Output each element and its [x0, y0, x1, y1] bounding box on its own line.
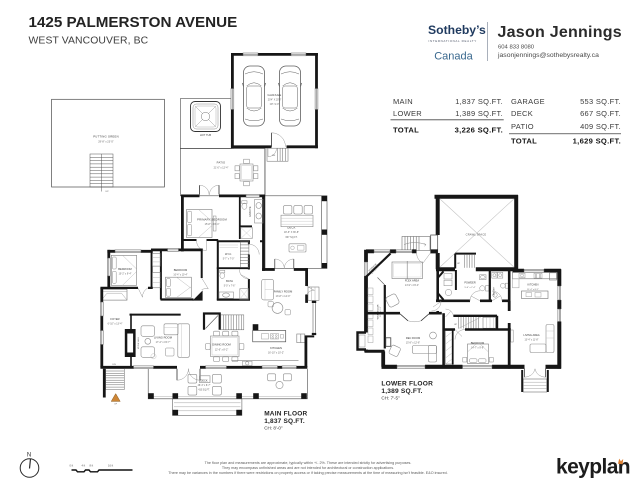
svg-text:FLEX AREA: FLEX AREA [405, 278, 419, 282]
svg-text:There may be variances in the: There may be variances in the numbers if… [168, 471, 447, 475]
svg-text:415 SQ.FT.: 415 SQ.FT. [198, 390, 210, 392]
svg-text:PRIMARY BEDROOM: PRIMARY BEDROOM [197, 217, 227, 221]
svg-text:8 ft: 8 ft [90, 464, 94, 468]
svg-text:16 ft: 16 ft [108, 464, 113, 468]
svg-text:PATIO: PATIO [217, 161, 226, 165]
svg-text:667 SQ.FT.: 667 SQ.FT. [580, 109, 621, 118]
svg-text:BEDROOM: BEDROOM [118, 267, 131, 271]
svg-text:DN: DN [272, 155, 276, 157]
svg-text:5'-7" x 7'-0": 5'-7" x 7'-0" [223, 258, 235, 260]
svg-text:GARAGE: GARAGE [511, 97, 545, 106]
svg-text:29'-8" x 23'-5": 29'-8" x 23'-5" [98, 140, 113, 143]
svg-text:14'-9" x 15'-4": 14'-9" x 15'-4" [405, 285, 419, 287]
svg-text:Jason Jennings: Jason Jennings [498, 24, 622, 41]
svg-text:10'-1" x 5'-9": 10'-1" x 5'-9" [380, 306, 382, 317]
svg-text:MAIN: MAIN [393, 97, 413, 106]
svg-text:DECK: DECK [200, 379, 207, 383]
svg-text:LIVING ROOM: LIVING ROOM [154, 336, 173, 340]
svg-text:20'4" X 20'8": 20'4" X 20'8" [268, 99, 282, 102]
svg-text:UP: UP [106, 191, 110, 193]
svg-text:BATH: BATH [226, 279, 233, 283]
svg-text:MAIN FLOOR: MAIN FLOOR [264, 411, 307, 418]
svg-text:5'-0" x 7'-6": 5'-0" x 7'-6" [224, 285, 236, 287]
svg-text:TOTAL: TOTAL [393, 125, 419, 134]
svg-text:CH: 8'-0": CH: 8'-0" [264, 425, 283, 430]
svg-text:553 SQ.FT.: 553 SQ.FT. [580, 97, 621, 106]
svg-text:WEST VANCOUVER, BC: WEST VANCOUVER, BC [29, 36, 149, 47]
svg-text:jasonjennings@sothebysrealty.c: jasonjennings@sothebysrealty.ca [497, 52, 599, 59]
svg-text:14'-7" x 9'-9": 14'-7" x 9'-9" [471, 347, 484, 349]
svg-text:PUTTING GREEN: PUTTING GREEN [93, 135, 119, 139]
svg-text:10'-2" x 9'-4": 10'-2" x 9'-4" [119, 274, 132, 276]
svg-text:17'-4" x 15'-7": 17'-4" x 15'-7" [156, 341, 171, 344]
svg-text:409 SQ.FT.: 409 SQ.FT. [580, 122, 621, 131]
svg-text:They may encompass unfinished: They may encompass unfinished areas and … [222, 466, 394, 470]
svg-text:KITCHEN: KITCHEN [528, 284, 539, 287]
svg-text:W.I.C.: W.I.C. [225, 252, 232, 256]
svg-text:FAMILY ROOM: FAMILY ROOM [274, 290, 293, 294]
svg-text:DINING ROOM: DINING ROOM [212, 343, 231, 347]
svg-text:1,389 SQ.FT.: 1,389 SQ.FT. [455, 109, 503, 118]
svg-text:N: N [27, 453, 31, 459]
svg-text:DECK: DECK [511, 109, 533, 118]
svg-text:4 ft: 4 ft [82, 464, 86, 468]
svg-text:REC ROOM: REC ROOM [406, 336, 420, 340]
svg-text:15'-8" x 12'-6": 15'-8" x 12'-6" [406, 342, 420, 344]
svg-text:UP: UP [457, 263, 461, 265]
svg-text:BEDROOM: BEDROOM [471, 341, 484, 345]
svg-text:0 ft: 0 ft [70, 464, 74, 468]
svg-text:5'-0" x 7'-4": 5'-0" x 7'-4" [464, 287, 475, 289]
svg-text:keyplan: keyplan [556, 456, 630, 479]
svg-text:12'-6" x 8'-2": 12'-6" x 8'-2" [215, 348, 229, 351]
svg-text:LOWER: LOWER [393, 109, 422, 118]
svg-text:GARAGE: GARAGE [267, 93, 281, 97]
svg-text:CH: 7'-5": CH: 7'-5" [381, 396, 400, 401]
svg-text:16'-10" x 10'-2": 16'-10" x 10'-2" [268, 352, 284, 355]
svg-text:1,837 SQ.FT.: 1,837 SQ.FT. [455, 97, 503, 106]
svg-text:The floor plan and measurement: The floor plan and measurements are appr… [205, 461, 412, 465]
svg-text:CRAWL SPACE: CRAWL SPACE [466, 232, 487, 236]
svg-text:POWDER: POWDER [464, 281, 475, 284]
svg-text:DECK: DECK [287, 226, 295, 230]
svg-text:INTERNATIONAL REALTY: INTERNATIONAL REALTY [429, 39, 477, 43]
svg-text:LIVING AREA: LIVING AREA [523, 333, 539, 337]
svg-text:1,837 SQ.FT.: 1,837 SQ.FT. [264, 418, 305, 425]
svg-text:6'-10" x 13'-4": 6'-10" x 13'-4" [108, 323, 123, 326]
svg-text:UP: UP [454, 324, 458, 326]
svg-text:15'-8" x 15'-4": 15'-8" x 15'-4" [205, 223, 220, 226]
svg-text:604 833 8080: 604 833 8080 [498, 44, 535, 50]
svg-text:BEDROOM: BEDROOM [174, 268, 187, 272]
svg-text:18'-6" X 36'-8": 18'-6" X 36'-8" [284, 231, 299, 234]
svg-text:1,629 SQ.FT.: 1,629 SQ.FT. [573, 137, 621, 146]
svg-text:CH: 9'-0": CH: 9'-0" [270, 103, 280, 106]
svg-text:21'-0" x 12'-4": 21'-0" x 12'-4" [214, 166, 229, 169]
svg-text:1425 PALMERSTON AVENUE: 1425 PALMERSTON AVENUE [29, 14, 238, 31]
svg-text:Canada: Canada [434, 51, 473, 63]
svg-text:ENSUITE: ENSUITE [250, 206, 252, 216]
svg-text:667 SQ.FT.: 667 SQ.FT. [285, 236, 297, 239]
svg-text:10'-4" x 10'-4": 10'-4" x 10'-4" [173, 275, 187, 277]
svg-text:MEDIA WALL: MEDIA WALL [137, 336, 140, 349]
svg-text:KITCHEN: KITCHEN [270, 346, 282, 350]
svg-text:FOYER: FOYER [110, 317, 119, 321]
svg-text:HOT TUB: HOT TUB [200, 133, 212, 137]
svg-text:13'-4" x 11'-8": 13'-4" x 11'-8" [525, 339, 539, 341]
svg-text:48'-4" x 8'-7": 48'-4" x 8'-7" [198, 385, 211, 387]
svg-text:11'-4" x 8'-1": 11'-4" x 8'-1" [527, 289, 539, 291]
svg-text:DN: DN [113, 364, 117, 366]
svg-text:1,389 SQ.FT.: 1,389 SQ.FT. [381, 388, 422, 395]
svg-text:Sotheby’s: Sotheby’s [428, 23, 486, 37]
svg-text:3,226 SQ.FT.: 3,226 SQ.FT. [455, 125, 503, 134]
svg-text:LOWER FLOOR: LOWER FLOOR [381, 381, 433, 388]
svg-text:WINE CELLAR: WINE CELLAR [376, 304, 379, 319]
svg-text:TOTAL: TOTAL [511, 137, 537, 146]
svg-text:13'-8" x 14'-0": 13'-8" x 14'-0" [276, 295, 291, 298]
svg-text:PATIO: PATIO [511, 122, 534, 131]
